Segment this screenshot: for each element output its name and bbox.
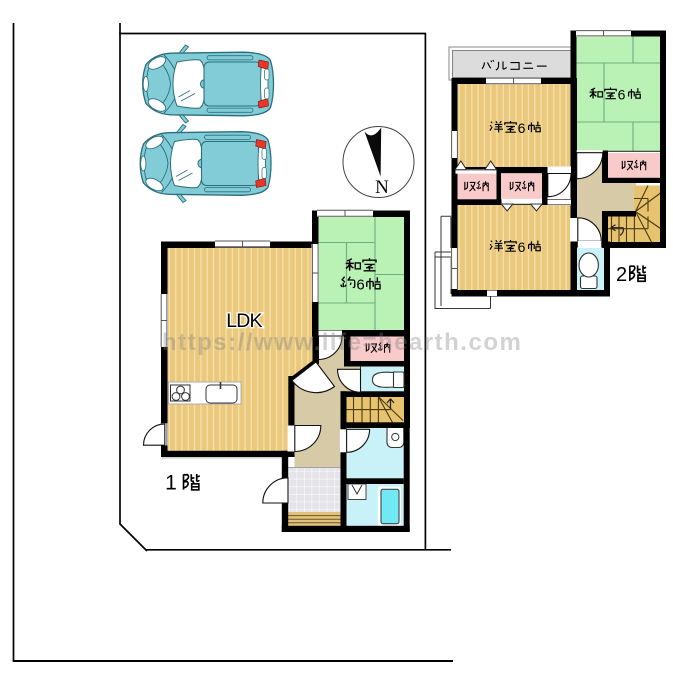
svg-text:1: 1 — [165, 472, 177, 495]
svg-text:6: 6 — [618, 87, 626, 103]
svg-text:https://www.life=hearth.com: https://www.life=hearth.com — [162, 329, 522, 356]
svg-text:6: 6 — [518, 239, 526, 255]
svg-text:6: 6 — [518, 120, 526, 136]
svg-text:6: 6 — [356, 277, 364, 294]
svg-text:2: 2 — [616, 264, 627, 286]
svg-text:N: N — [375, 177, 389, 198]
